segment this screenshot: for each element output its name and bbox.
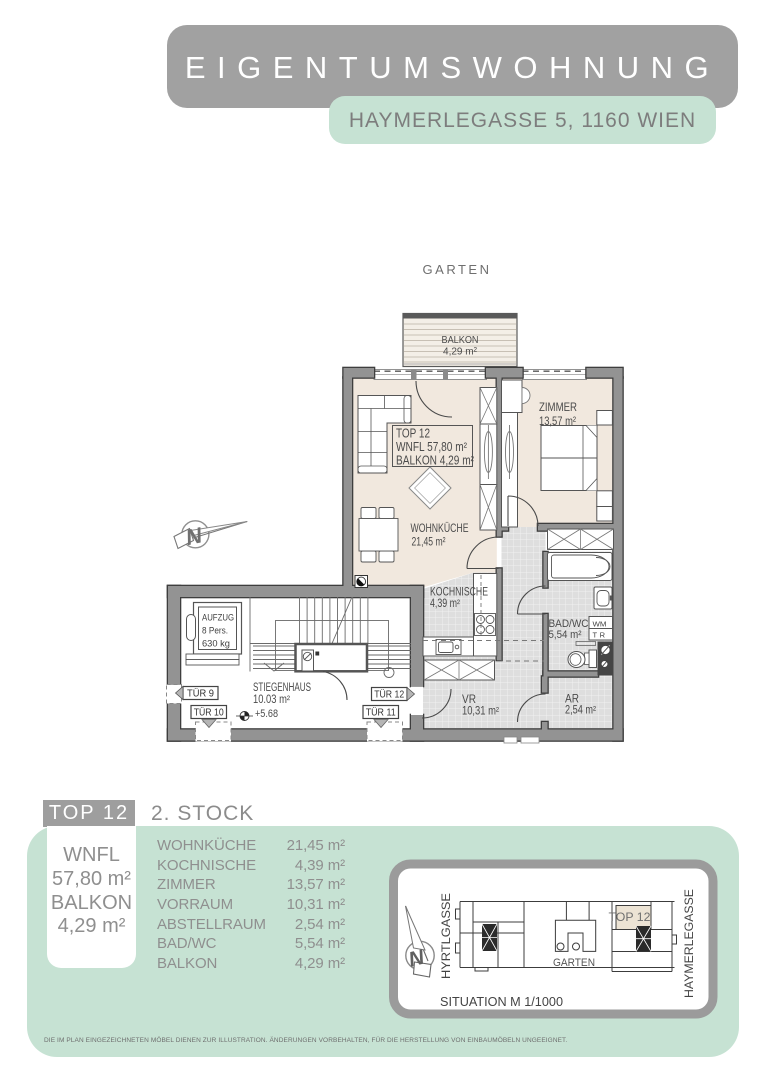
svg-text:TÜR 9: TÜR 9 [187,688,214,700]
svg-text:ZIMMER: ZIMMER [539,400,577,414]
svg-text:4,39 m²: 4,39 m² [430,598,460,610]
svg-text:TÜR 12: TÜR 12 [374,689,404,701]
svg-text:TÜR 10: TÜR 10 [194,707,224,719]
svg-text:10.03 m²: 10.03 m² [253,694,290,706]
svg-text:TR: TR [593,631,608,640]
svg-text:2,54 m²: 2,54 m² [565,705,596,717]
svg-text:630 kg: 630 kg [202,639,230,650]
svg-text:5,54 m²: 5,54 m² [549,629,582,641]
svg-text:HYRTLGASSE: HYRTLGASSE [439,893,453,979]
svg-text:+5.68: +5.68 [255,708,278,720]
svg-text:VR: VR [462,694,476,706]
svg-text:WNFL 57,80 m²: WNFL 57,80 m² [396,440,467,454]
svg-text:WM: WM [593,620,607,629]
svg-text:KOCHNISCHE: KOCHNISCHE [430,587,488,599]
svg-text:STIEGENHAUS: STIEGENHAUS [253,682,311,694]
svg-text:TOP 12: TOP 12 [396,427,430,441]
svg-text:SITUATION M 1/1000: SITUATION M 1/1000 [440,995,563,1009]
svg-text:BALKON 4,29 m²: BALKON 4,29 m² [396,454,474,468]
svg-text:HAYMERLEGASSE: HAYMERLEGASSE [682,889,696,998]
svg-text:BALKON: BALKON [442,334,479,346]
svg-text:13,57 m²: 13,57 m² [539,414,576,428]
svg-text:TOP 12: TOP 12 [609,910,651,924]
svg-text:GARTEN: GARTEN [553,957,595,969]
svg-text:AUFZUG: AUFZUG [202,613,234,624]
svg-text:4,29 m²: 4,29 m² [443,346,477,358]
svg-text:8 Pers.: 8 Pers. [202,626,228,637]
svg-text:TÜR 11: TÜR 11 [366,707,396,719]
svg-text:10,31 m²: 10,31 m² [462,706,499,718]
svg-text:WOHNKÜCHE: WOHNKÜCHE [411,521,469,535]
svg-text:21,45 m²: 21,45 m² [412,535,446,549]
